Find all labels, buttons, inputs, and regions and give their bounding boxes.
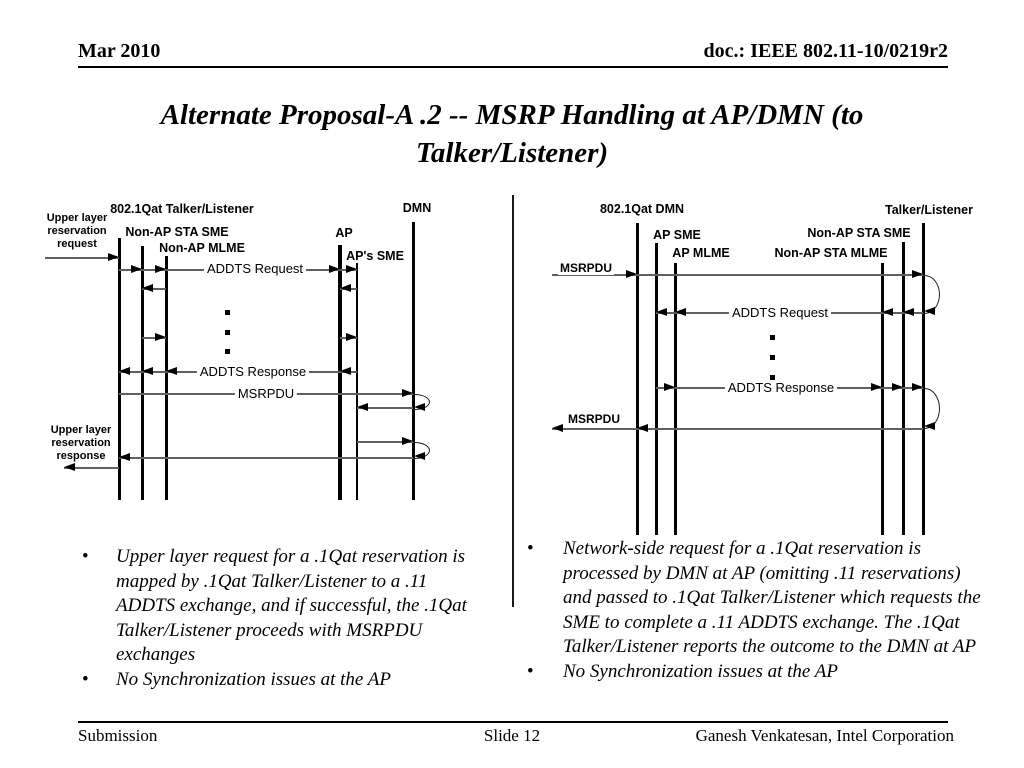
left-notes-list: Upper layer request for a .1Qat reservat… — [72, 545, 490, 692]
slide: Mar 2010 doc.: IEEE 802.11-10/0219r2 Alt… — [0, 0, 1024, 768]
lifeline-ap-mlme-right — [674, 263, 677, 535]
label-qat-talker-listener: 802.1Qat Talker/Listener — [110, 202, 254, 216]
arrow-head — [656, 308, 667, 316]
arrow-head — [155, 333, 166, 341]
lifeline-ap-sme-right — [655, 243, 658, 535]
arrow-line — [552, 428, 637, 429]
right-notes: Network-side request for a .1Qat reserva… — [517, 537, 989, 684]
loop-arrow-head — [414, 403, 425, 411]
left-notes: Upper layer request for a .1Qat reservat… — [72, 545, 490, 692]
arrow-head — [329, 265, 340, 273]
arrow-head — [664, 383, 675, 391]
arrow-head — [119, 367, 130, 375]
label-non-ap-mlme: Non-AP MLME — [159, 241, 245, 255]
ellipsis-dot — [225, 310, 230, 315]
arrow-head — [882, 308, 893, 316]
label-ap-sme: AP SME — [653, 228, 701, 242]
note-item: Upper layer request for a .1Qat reservat… — [72, 545, 490, 668]
label-talker-listener: Talker/Listener — [885, 203, 973, 217]
loop-arrow-head — [924, 422, 935, 430]
label-non-ap-sta-sme: Non-AP STA SME — [125, 225, 228, 239]
arrow-line — [119, 457, 413, 458]
arrow-head — [64, 463, 75, 471]
arrow-head — [119, 453, 130, 461]
arrow-head — [346, 333, 357, 341]
arrow-head — [155, 265, 166, 273]
right-notes-list: Network-side request for a .1Qat reserva… — [517, 537, 989, 684]
label-addts-request-left: ADDTS Request — [204, 262, 306, 276]
arrow-head — [142, 284, 153, 292]
footer-rule — [78, 721, 948, 723]
arrow-head — [637, 424, 648, 432]
label-non-ap-sta-mlme-r: Non-AP STA MLME — [775, 246, 888, 260]
label-addts-response-left: ADDTS Response — [197, 365, 309, 379]
ellipsis-dot — [770, 375, 775, 380]
label-aps-sme: AP's SME — [346, 249, 404, 263]
loop-arrow-head — [924, 307, 935, 315]
column-divider-line — [512, 195, 514, 607]
label-qat-dmn: 802.1Qat DMN — [600, 202, 684, 216]
ellipsis-dot — [225, 349, 230, 354]
label-non-ap-sta-sme-r: Non-AP STA SME — [807, 226, 910, 240]
arrow-head — [346, 265, 357, 273]
note-item: No Synchronization issues at the AP — [517, 660, 989, 685]
footer-slide-number: Slide 12 — [484, 726, 540, 746]
label-msrpdu-out: MSRPDU — [566, 413, 622, 426]
lifeline-non-ap-mlme — [165, 256, 168, 500]
label-addts-request-right: ADDTS Request — [729, 306, 831, 320]
arrow-head — [903, 308, 914, 316]
arrow-head — [340, 367, 351, 375]
label-upper-layer-request: Upper layer reservation request — [47, 212, 108, 251]
arrow-head — [357, 403, 368, 411]
arrow-line — [637, 274, 923, 275]
footer-submission: Submission — [78, 726, 157, 746]
lifeline-aps-sme — [356, 263, 358, 500]
arrow-head — [892, 383, 903, 391]
arrow-line — [637, 428, 923, 429]
ellipsis-dot — [770, 355, 775, 360]
arrow-head — [552, 424, 563, 432]
label-dmn: DMN — [403, 201, 431, 215]
arrow-head — [340, 284, 351, 292]
footer-author: Ganesh Venkatesan, Intel Corporation — [696, 726, 954, 746]
arrow-head — [402, 437, 413, 445]
ellipsis-dot — [225, 330, 230, 335]
loop-arrow-head — [414, 452, 425, 460]
label-msrpdu-left: MSRPDU — [235, 387, 297, 401]
arrow-head — [142, 367, 153, 375]
arrow-head — [871, 383, 882, 391]
label-addts-response-right: ADDTS Response — [725, 381, 837, 395]
arrow-head — [131, 265, 142, 273]
note-item: No Synchronization issues at the AP — [72, 668, 490, 693]
arrow-head — [675, 308, 686, 316]
arrow-head — [166, 367, 177, 375]
label-upper-layer-response: Upper layer reservation response — [51, 424, 112, 463]
label-ap: AP — [335, 226, 352, 240]
arrow-head — [912, 383, 923, 391]
arrow-head — [402, 389, 413, 397]
label-msrpdu-in: MSRPDU — [558, 262, 614, 275]
arrow-head — [626, 270, 637, 278]
note-item: Network-side request for a .1Qat reserva… — [517, 537, 989, 660]
lifeline-sta-mlme-right — [881, 263, 884, 535]
label-ap-mlme: AP MLME — [672, 246, 729, 260]
arrow-head — [912, 270, 923, 278]
ellipsis-dot — [770, 335, 775, 340]
arrow-head — [108, 253, 119, 261]
